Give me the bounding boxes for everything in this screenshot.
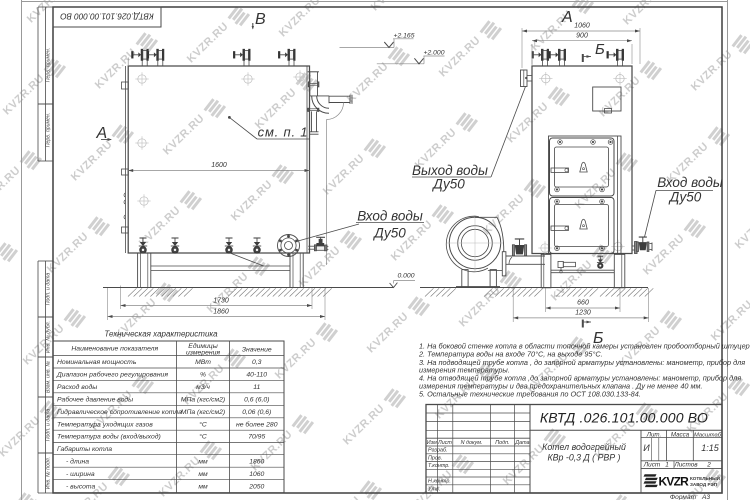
svg-text:Инв. № дубл.: Инв. № дубл. xyxy=(46,321,52,353)
svg-text:900: 900 xyxy=(576,33,588,40)
svg-text:+2.165: +2.165 xyxy=(394,32,415,39)
svg-text:2050: 2050 xyxy=(248,484,264,491)
svg-text:Вход воды: Вход воды xyxy=(657,175,723,190)
svg-text:КОТЕЛЬНЫЙ: КОТЕЛЬНЫЙ xyxy=(690,474,720,481)
svg-text:Техническая характеристика: Техническая характеристика xyxy=(104,330,218,339)
svg-text:Наименование показателя: Наименование показателя xyxy=(71,346,158,353)
svg-text:11: 11 xyxy=(253,384,260,391)
svg-text:Перв. примен.: Перв. примен. xyxy=(46,48,52,82)
svg-text:Диапазон рабочего регулировани: Диапазон рабочего регулирования xyxy=(56,371,168,379)
svg-text:Ду50: Ду50 xyxy=(668,190,702,205)
svg-text:Разраб.: Разраб. xyxy=(428,448,448,454)
svg-text:Расход воды: Расход воды xyxy=(57,383,97,391)
svg-text:КВТД.026.101.00.000 ВО: КВТД.026.101.00.000 ВО xyxy=(60,12,154,21)
svg-text:0.000: 0.000 xyxy=(397,273,414,280)
svg-text:40-110: 40-110 xyxy=(246,372,267,379)
svg-text:+2.000: +2.000 xyxy=(424,50,445,57)
svg-text:5. Остальные технические треб: 5. Остальные технические требования по О… xyxy=(419,390,641,399)
svg-text:Листов: Листов xyxy=(673,462,698,469)
svg-text:°С: °С xyxy=(199,420,207,428)
svg-text:МВт: МВт xyxy=(195,359,211,366)
svg-text:660: 660 xyxy=(577,300,589,307)
svg-text:Вход воды: Вход воды xyxy=(357,209,423,224)
svg-text:Значение: Значение xyxy=(242,347,272,354)
svg-text:Инв. № подл.: Инв. № подл. xyxy=(46,457,52,489)
svg-text:1860: 1860 xyxy=(213,309,229,316)
svg-text:Рабочее давление воды: Рабочее давление воды xyxy=(57,395,133,403)
svg-text:Утв.: Утв. xyxy=(427,486,440,492)
svg-text:1600: 1600 xyxy=(211,162,227,169)
svg-text:1860: 1860 xyxy=(249,458,264,465)
svg-text:Т.контр.: Т.контр. xyxy=(428,463,450,469)
svg-text:В: В xyxy=(255,11,266,28)
svg-text:Н.контр.: Н.контр. xyxy=(428,479,451,485)
svg-text:0,6 (6,0): 0,6 (6,0) xyxy=(244,396,269,403)
svg-text:КВр -0,3 Д ( РВР ): КВр -0,3 Д ( РВР ) xyxy=(548,453,621,463)
svg-text:мм: мм xyxy=(198,471,208,478)
svg-text:KVZR: KVZR xyxy=(659,475,690,489)
svg-text:1:15: 1:15 xyxy=(701,443,720,453)
svg-text:м3/ч: м3/ч xyxy=(196,384,210,391)
svg-text:А3: А3 xyxy=(701,494,710,500)
svg-text:Б: Б xyxy=(595,41,605,58)
svg-text:°С: °С xyxy=(199,433,207,441)
svg-text:Температура воды (вход/выход): Температура воды (вход/выход) xyxy=(57,433,161,441)
svg-text:- длина: - длина xyxy=(66,457,89,465)
svg-text:Подп. и дата: Подп. и дата xyxy=(46,409,52,442)
svg-text:1060: 1060 xyxy=(249,471,264,478)
svg-text:Габариты котла: Габариты котла xyxy=(57,445,112,453)
svg-text:не более 280: не более 280 xyxy=(236,420,278,428)
svg-text:0,3: 0,3 xyxy=(252,359,262,366)
svg-text:Дата: Дата xyxy=(514,440,529,446)
svg-text:Ду50: Ду50 xyxy=(431,177,465,192)
svg-text:МПа (кгс/см2): МПа (кгс/см2) xyxy=(181,409,225,416)
svg-text:N докум.: N докум. xyxy=(461,440,483,446)
svg-text:Взам. инв. №: Взам. инв. № xyxy=(46,361,52,393)
svg-text:Масштаб: Масштаб xyxy=(694,432,722,438)
svg-text:А: А xyxy=(561,9,573,26)
svg-text:1060: 1060 xyxy=(574,23,590,30)
svg-text:Температура уходящих газов: Температура уходящих газов xyxy=(57,420,153,428)
svg-text:1: 1 xyxy=(665,462,669,469)
svg-text:Масса: Масса xyxy=(671,431,690,438)
svg-text:%: % xyxy=(200,372,206,379)
svg-text:Гидравлическое сопротивление к: Гидравлическое сопротивление котла xyxy=(57,408,182,416)
svg-text:Подп.: Подп. xyxy=(495,440,509,446)
svg-text:Пров.: Пров. xyxy=(428,455,442,461)
svg-text:Формат: Формат xyxy=(670,494,697,500)
svg-text:Лист: Лист xyxy=(643,462,661,469)
svg-text:1730: 1730 xyxy=(213,298,229,305)
svg-text:ЗАВОД РЭП: ЗАВОД РЭП xyxy=(690,482,717,487)
svg-text:Номинальная мощность: Номинальная мощность xyxy=(57,359,137,366)
svg-text:70/95: 70/95 xyxy=(248,434,265,441)
svg-text:2: 2 xyxy=(706,462,711,469)
svg-text:КВТД .026.101.00.000 ВО: КВТД .026.101.00.000 ВО xyxy=(540,410,708,426)
svg-text:Котел водогрейный: Котел водогрейный xyxy=(542,442,626,452)
svg-text:Изм: Изм xyxy=(427,440,437,446)
svg-text:мм: мм xyxy=(198,484,208,491)
svg-text:- ширина: - ширина xyxy=(66,471,95,478)
svg-text:МПа (кгс/см2): МПа (кгс/см2) xyxy=(181,396,225,403)
svg-text:Подп. и дата: Подп. и дата xyxy=(46,273,52,306)
svg-text:Лист: Лист xyxy=(437,440,452,446)
svg-text:см. п. 1: см. п. 1 xyxy=(258,125,309,140)
svg-text:Ду50: Ду50 xyxy=(372,226,406,241)
svg-text:И: И xyxy=(643,443,650,453)
svg-text:- высота: - высота xyxy=(66,484,95,491)
svg-text:0,06 (0,6): 0,06 (0,6) xyxy=(242,409,271,416)
svg-text:измерения: измерения xyxy=(186,349,220,356)
svg-text:Лит.: Лит. xyxy=(646,431,662,438)
svg-text:мм: мм xyxy=(198,458,208,465)
svg-text:1230: 1230 xyxy=(575,310,591,317)
svg-text:Перв. примен.: Перв. примен. xyxy=(46,113,52,147)
